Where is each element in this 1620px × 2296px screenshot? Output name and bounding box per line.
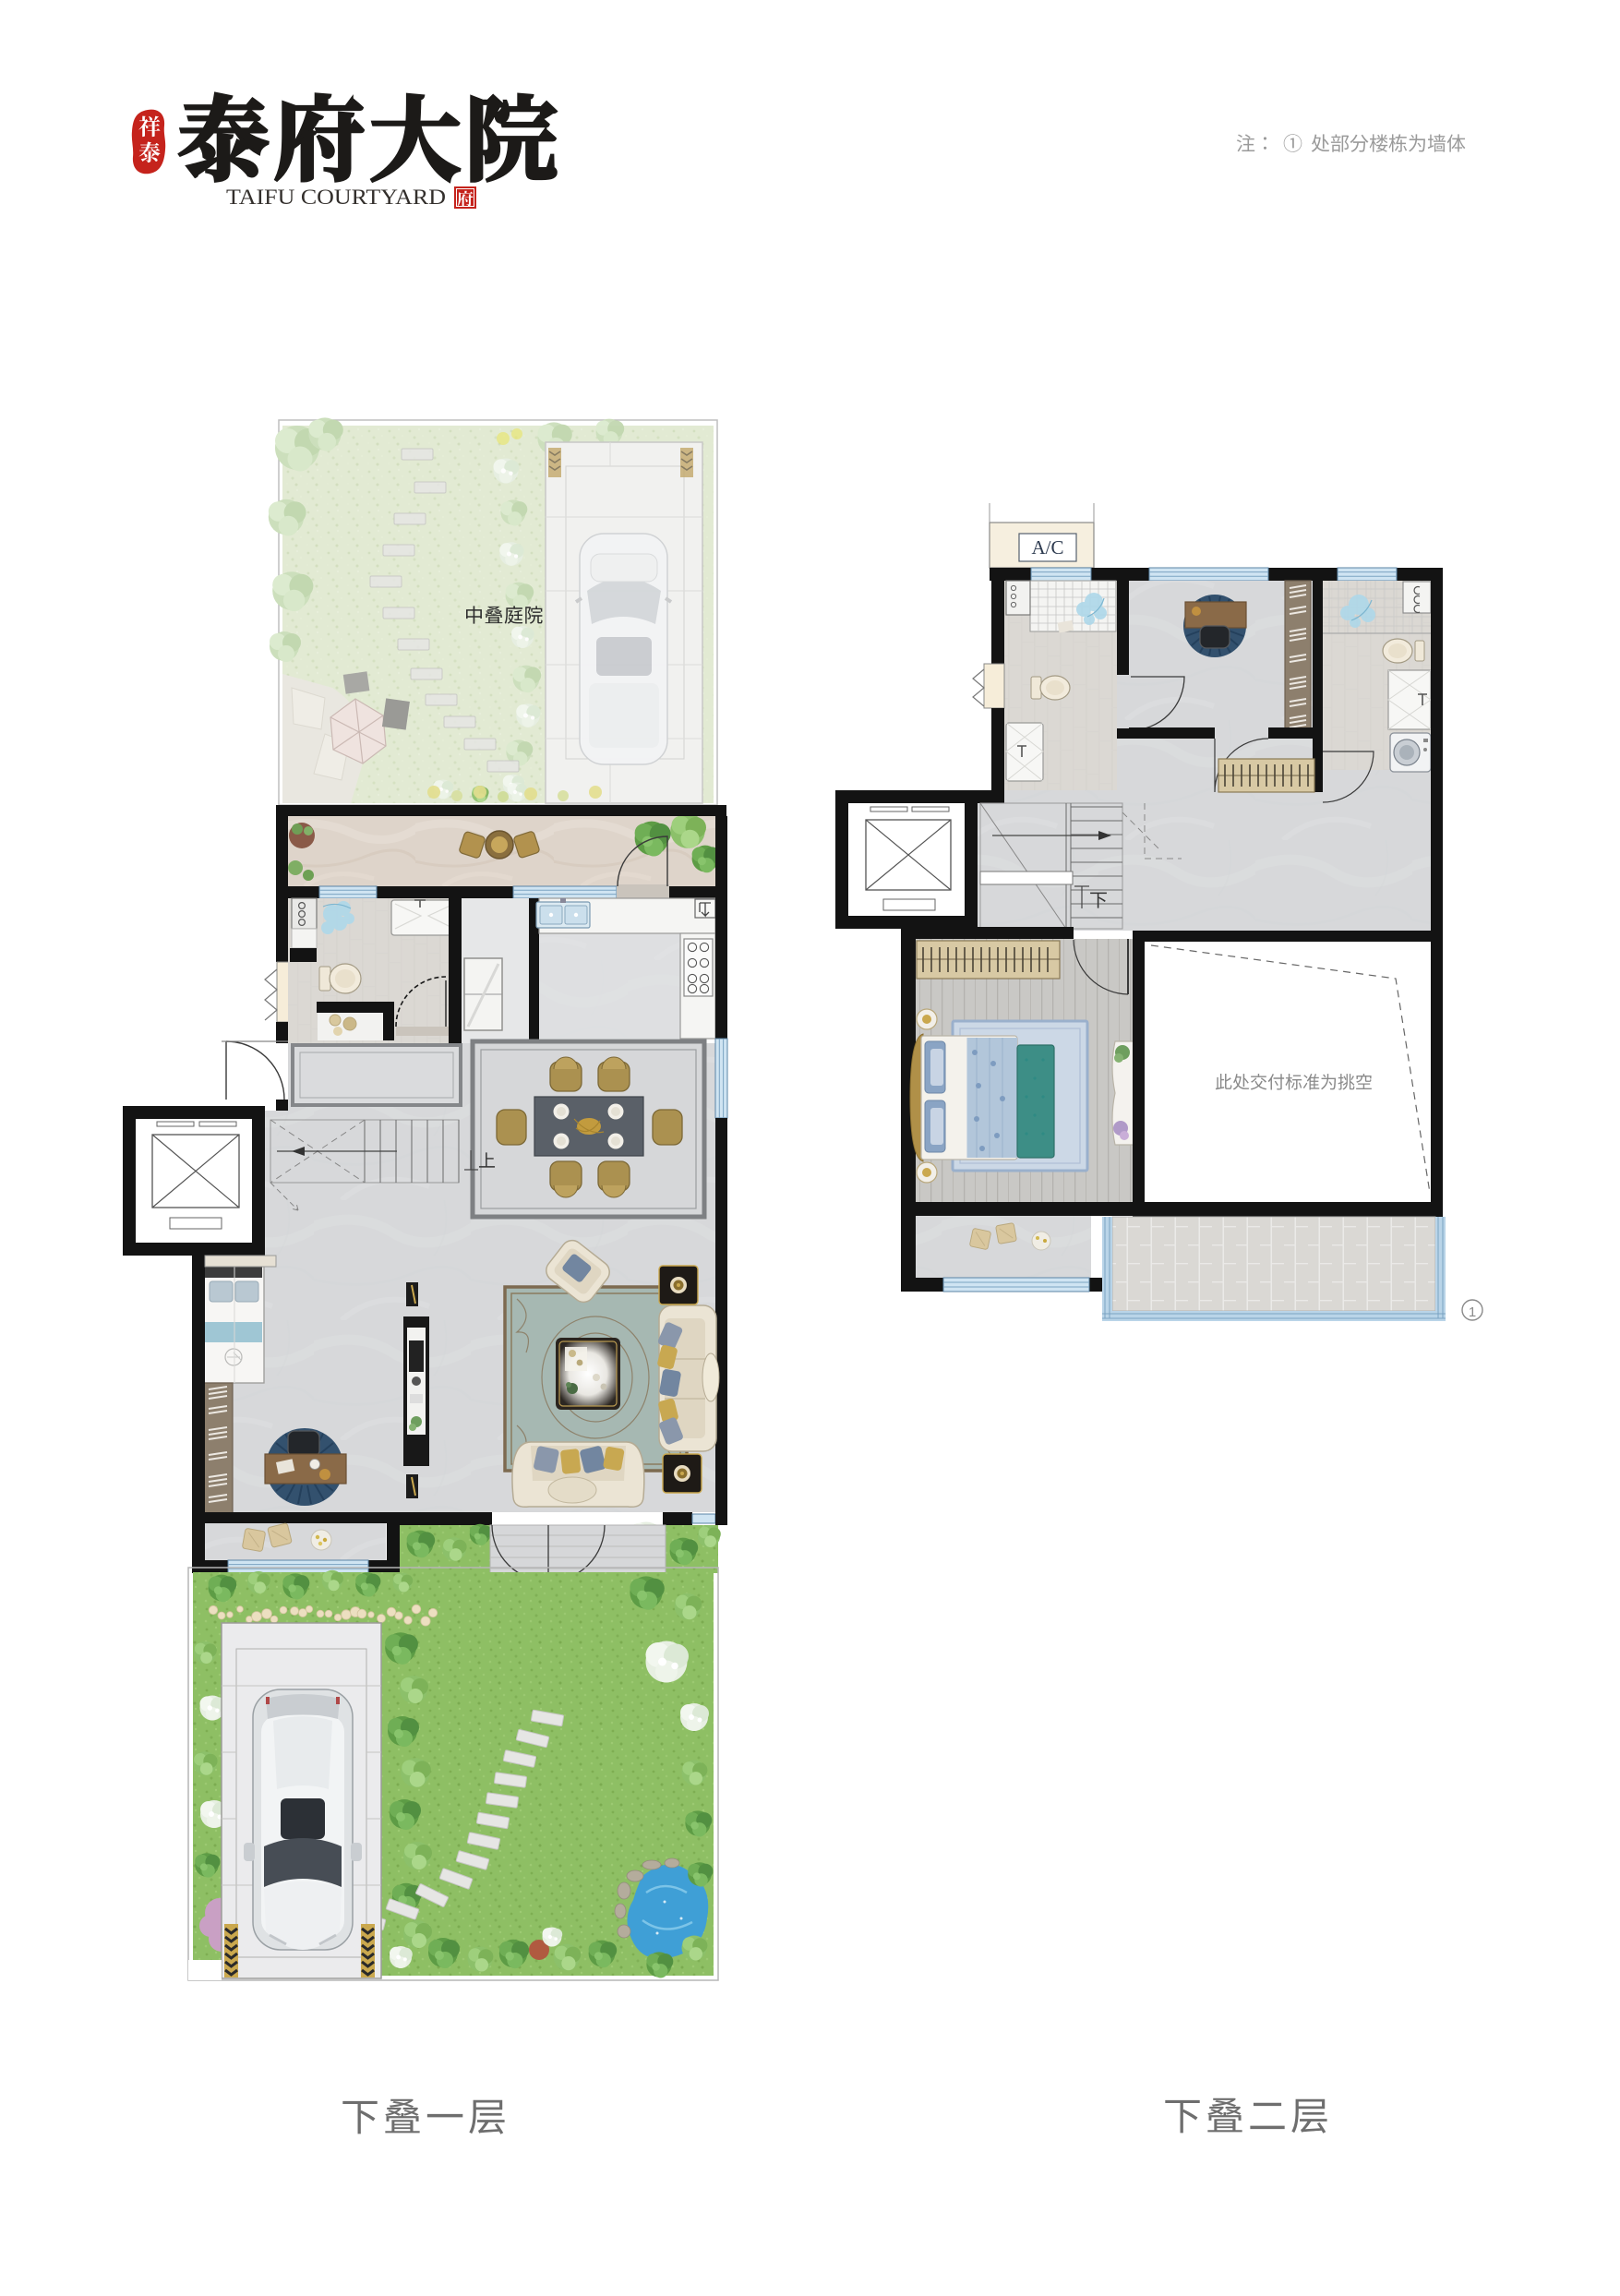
- svg-text:TAIFU COURTYARD: TAIFU COURTYARD: [226, 186, 446, 209]
- svg-text:A/C: A/C: [1031, 536, 1063, 559]
- svg-text:1: 1: [1469, 1304, 1476, 1320]
